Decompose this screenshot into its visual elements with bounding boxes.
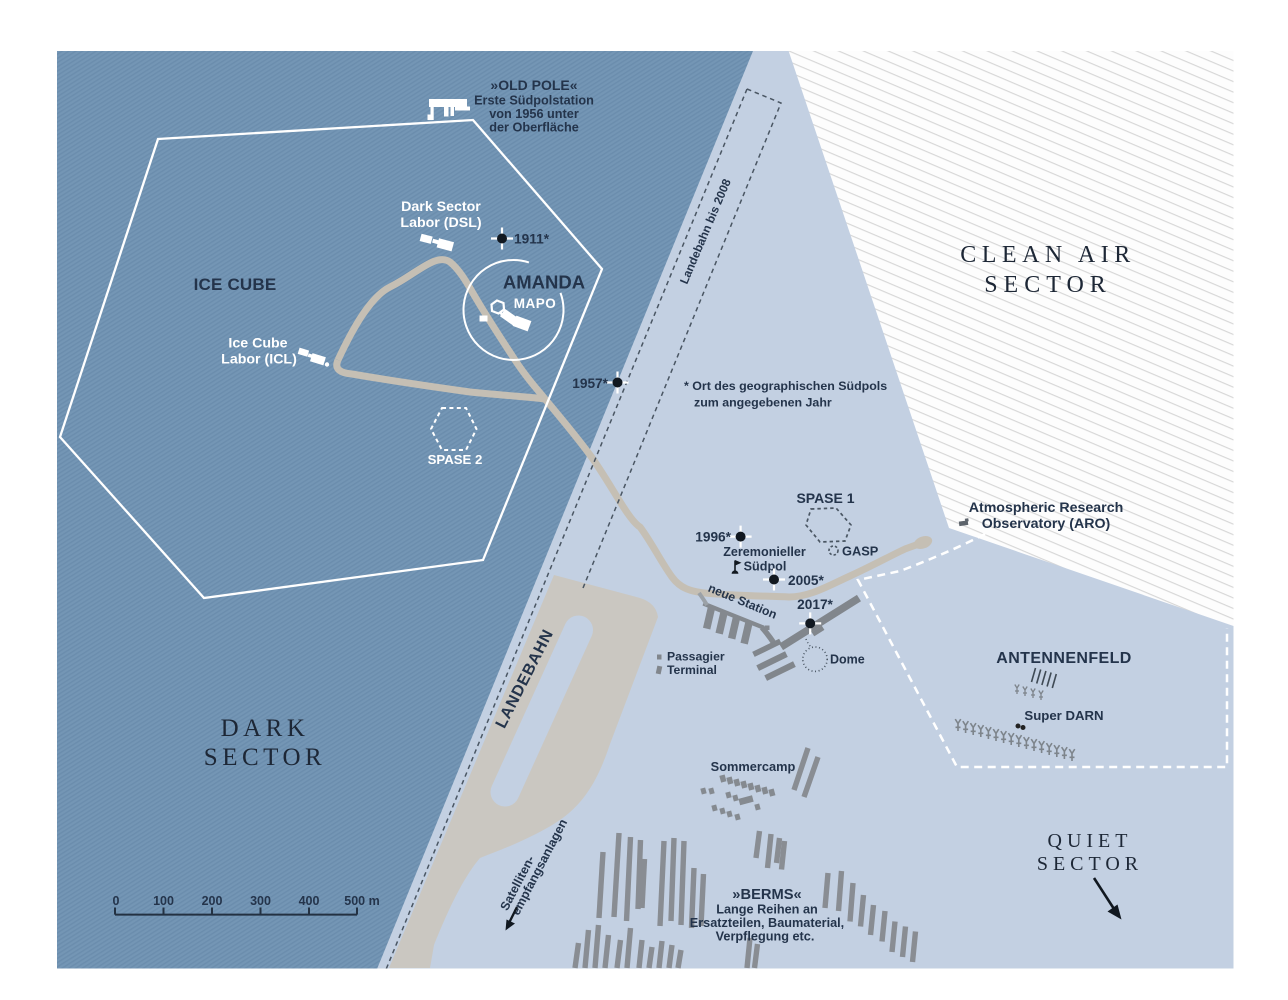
svg-text:Lange Reihen an: Lange Reihen an [716, 903, 818, 917]
svg-text:Labor (DSL): Labor (DSL) [400, 215, 481, 231]
svg-text:»BERMS«: »BERMS« [732, 887, 801, 903]
svg-text:QUIET: QUIET [1048, 830, 1133, 852]
svg-text:Observatory (ARO): Observatory (ARO) [982, 516, 1111, 532]
svg-text:ICE CUBE: ICE CUBE [194, 275, 277, 294]
svg-text:300: 300 [250, 894, 271, 908]
svg-text:SPASE 1: SPASE 1 [796, 490, 854, 506]
svg-text:SECTOR: SECTOR [1037, 853, 1143, 875]
svg-text:1957*: 1957* [572, 376, 608, 391]
svg-text:2017*: 2017* [797, 597, 833, 612]
svg-text:Passagier: Passagier [667, 650, 725, 664]
svg-text:Ersatzteilen, Baumaterial,: Ersatzteilen, Baumaterial, [690, 916, 844, 930]
svg-text:Super DARN: Super DARN [1024, 708, 1103, 723]
svg-text:SPASE 2: SPASE 2 [428, 452, 483, 467]
svg-text:100: 100 [153, 894, 174, 908]
svg-text:zum angegebenen Jahr: zum angegebenen Jahr [694, 396, 832, 410]
svg-text:von 1956 unter: von 1956 unter [489, 107, 579, 121]
svg-text:Terminal: Terminal [667, 663, 717, 677]
svg-text:AMANDA: AMANDA [503, 272, 585, 293]
svg-text:Atmospheric Research: Atmospheric Research [969, 500, 1124, 516]
svg-text:Dome: Dome [830, 653, 865, 667]
svg-text:Dark Sector: Dark Sector [401, 199, 481, 215]
svg-text:GASP: GASP [842, 544, 879, 559]
svg-text:Ice Cube: Ice Cube [228, 336, 287, 352]
svg-text:SECTOR: SECTOR [204, 744, 326, 771]
svg-text:400: 400 [299, 894, 320, 908]
svg-text:Labor (ICL): Labor (ICL) [221, 352, 297, 368]
svg-text:1911*: 1911* [514, 232, 550, 247]
svg-text:Zeremonieller: Zeremonieller [723, 545, 806, 559]
svg-text:CLEAN AIR: CLEAN AIR [960, 242, 1136, 268]
svg-text:500 m: 500 m [344, 894, 379, 908]
svg-text:Sommercamp: Sommercamp [711, 759, 796, 774]
svg-text:* Ort des geographischen Südpo: * Ort des geographischen Südpols [684, 379, 887, 393]
svg-text:Südpol: Südpol [744, 560, 787, 574]
svg-text:DARK: DARK [221, 715, 310, 742]
svg-text:200: 200 [202, 894, 223, 908]
svg-text:Erste Südpolstation: Erste Südpolstation [474, 94, 594, 108]
svg-text:SECTOR: SECTOR [984, 272, 1112, 298]
svg-text:1996*: 1996* [695, 530, 731, 545]
svg-text:der Oberfläche: der Oberfläche [489, 121, 579, 135]
svg-text:2005*: 2005* [788, 573, 824, 588]
svg-text:»OLD POLE«: »OLD POLE« [490, 77, 577, 93]
svg-text:MAPO: MAPO [514, 296, 557, 311]
svg-text:ANTENNENFELD: ANTENNENFELD [996, 650, 1131, 667]
svg-text:0: 0 [113, 894, 120, 908]
svg-text:Verpflegung etc.: Verpflegung etc. [716, 930, 815, 944]
